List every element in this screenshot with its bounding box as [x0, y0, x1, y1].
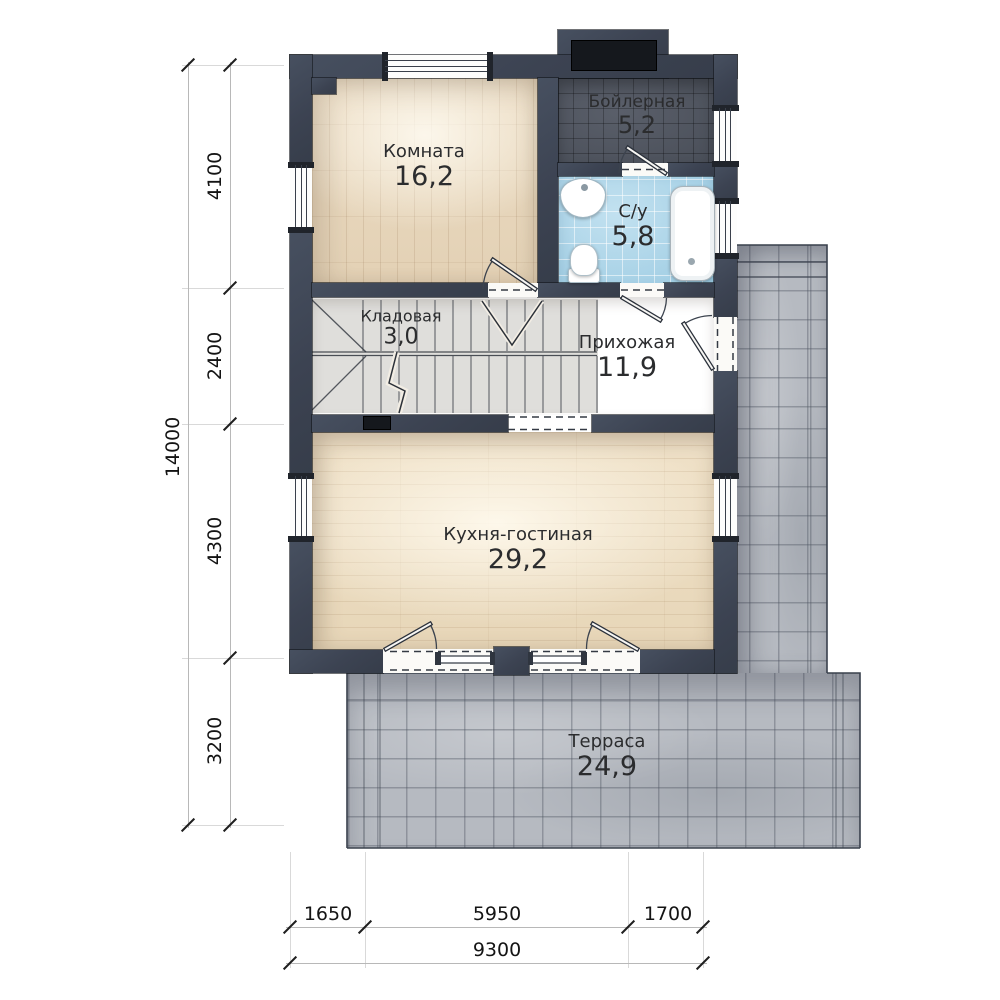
room-name: Комната: [383, 142, 465, 162]
room-name: Кухня-гостиная: [443, 525, 592, 545]
room-label-kitchen: Кухня-гостиная 29,2: [443, 525, 592, 575]
room-label-boiler: Бойлерная 5,2: [589, 93, 686, 139]
dim-line-left-segments: [230, 62, 231, 828]
dim-value-1700: 1700: [644, 903, 692, 925]
dim-value-4300: 4300: [204, 517, 226, 565]
dim-value-2400: 2400: [204, 332, 226, 380]
room-name: Бойлерная: [589, 93, 686, 112]
witness-line: [182, 658, 284, 659]
room-area: 11,9: [579, 353, 675, 383]
room-label-hallway: Прихожая 11,9: [579, 333, 675, 383]
room-area: 5,8: [612, 222, 655, 252]
room-area: 3,0: [360, 326, 441, 351]
witness-line: [182, 825, 284, 826]
dim-line-left-total: [188, 62, 189, 828]
dim-value-3200: 3200: [204, 717, 226, 765]
room-label-bath: С/у 5,8: [612, 202, 655, 252]
room-label-terrace: Терраса 24,9: [569, 732, 646, 782]
room-area: 24,9: [569, 752, 646, 782]
room-name: Кладовая: [360, 308, 441, 326]
floor-plan: Комната 16,2 Бойлерная 5,2 С/у 5,8 Кладо…: [0, 0, 1000, 1000]
witness-line: [290, 852, 291, 968]
plan-linework-over: [0, 0, 1000, 1000]
witness-line: [365, 852, 366, 968]
room-name: С/у: [612, 202, 655, 222]
witness-line: [703, 852, 704, 968]
room-name: Терраса: [569, 732, 646, 752]
dim-value-5950: 5950: [473, 903, 521, 925]
dim-value-14000: 14000: [162, 417, 184, 477]
dim-line-bottom-segments: [286, 927, 707, 928]
witness-line: [628, 852, 629, 968]
witness-line: [182, 65, 284, 66]
witness-line: [182, 424, 284, 425]
room-area: 5,2: [589, 112, 686, 139]
witness-line: [182, 288, 284, 289]
room-name: Прихожая: [579, 333, 675, 353]
room-label-storage: Кладовая 3,0: [360, 308, 441, 351]
room-label-living: Комната 16,2: [383, 142, 465, 192]
room-area: 29,2: [443, 545, 592, 575]
dim-line-bottom-total: [286, 963, 707, 964]
dim-value-4100: 4100: [204, 152, 226, 200]
room-area: 16,2: [383, 162, 465, 192]
dim-value-9300: 9300: [473, 939, 521, 961]
dim-value-1650: 1650: [304, 903, 352, 925]
